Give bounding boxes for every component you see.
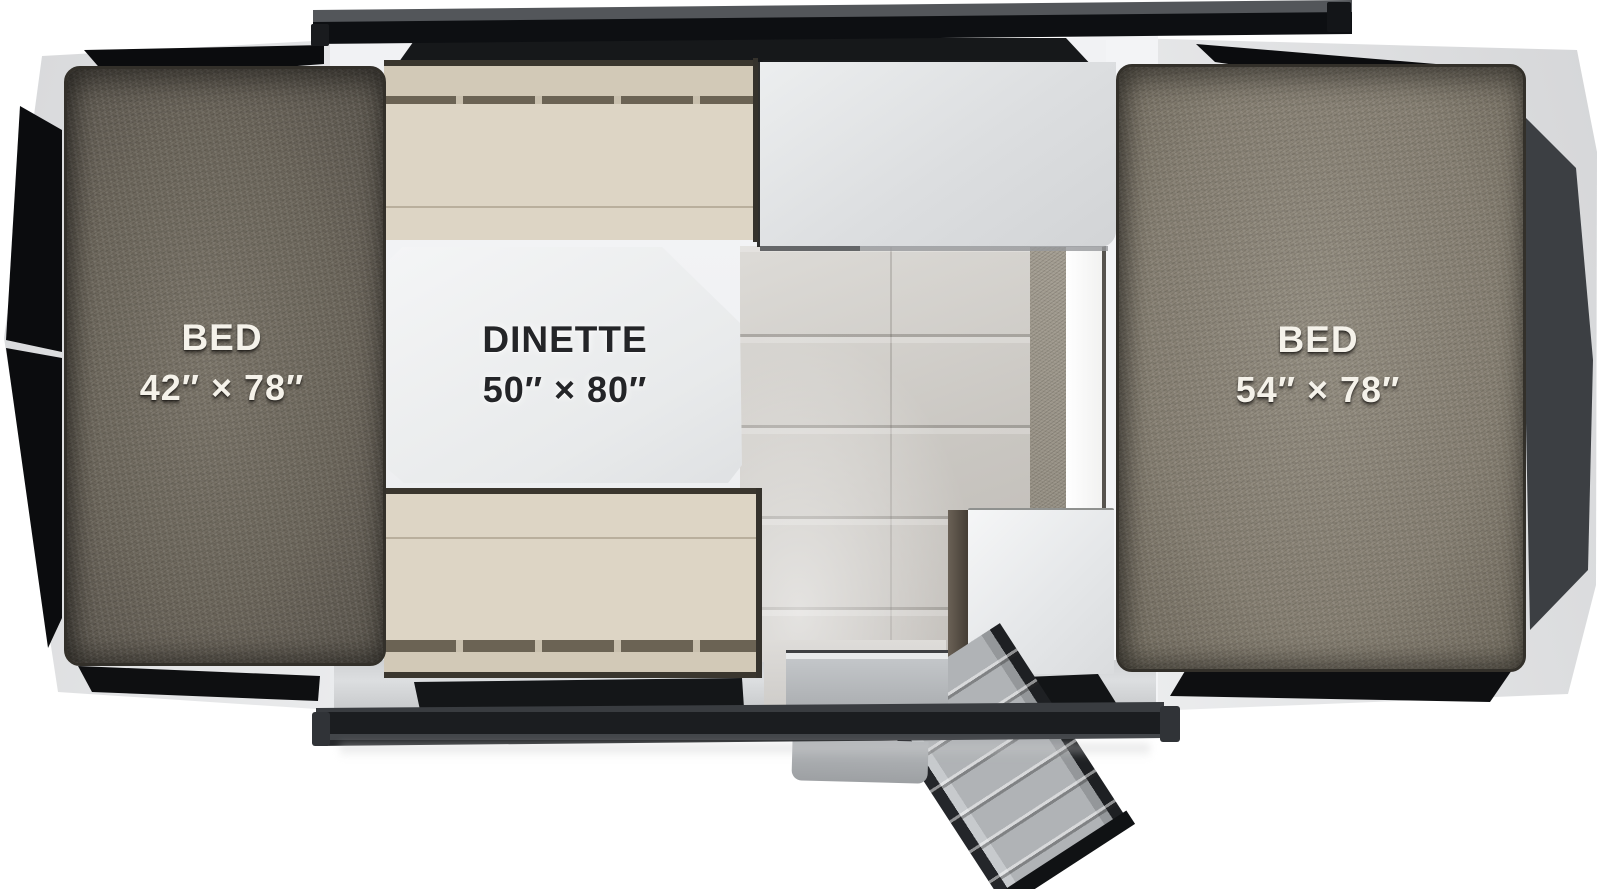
floorplan-canvas: BED 42″ × 78″ DINETTE 50″ × 80″ BED 54″ … bbox=[0, 0, 1600, 889]
bumper-latch-right bbox=[1160, 706, 1180, 742]
cushion-crease bbox=[384, 537, 762, 539]
dinette-bench-bottom bbox=[384, 488, 762, 678]
bench-seat bbox=[384, 494, 762, 640]
dinette-bench-top bbox=[384, 58, 758, 242]
roof-rail-latch-right bbox=[1327, 2, 1351, 32]
bumper-latch-left bbox=[312, 712, 330, 746]
cushion-crease bbox=[384, 206, 758, 208]
ladder-end-cap bbox=[994, 811, 1135, 889]
bench-seat bbox=[384, 104, 758, 240]
right-bed-mattress bbox=[1116, 64, 1526, 672]
kitchen-counter bbox=[757, 62, 1116, 247]
bench-stitching bbox=[384, 96, 758, 104]
counter-shadow bbox=[760, 246, 1108, 251]
dinette-table bbox=[388, 247, 742, 483]
bench-backrest bbox=[384, 66, 758, 96]
carpet-divider bbox=[1030, 246, 1066, 518]
roof-rail-latch-left bbox=[311, 24, 329, 46]
bench-stitching bbox=[384, 640, 762, 652]
ground-shadow bbox=[340, 744, 1150, 758]
bench-edge bbox=[753, 58, 758, 242]
bench-edge bbox=[384, 672, 762, 678]
left-bed-mattress bbox=[64, 66, 386, 666]
bench-backrest bbox=[384, 652, 762, 672]
bench-edge bbox=[756, 488, 762, 678]
